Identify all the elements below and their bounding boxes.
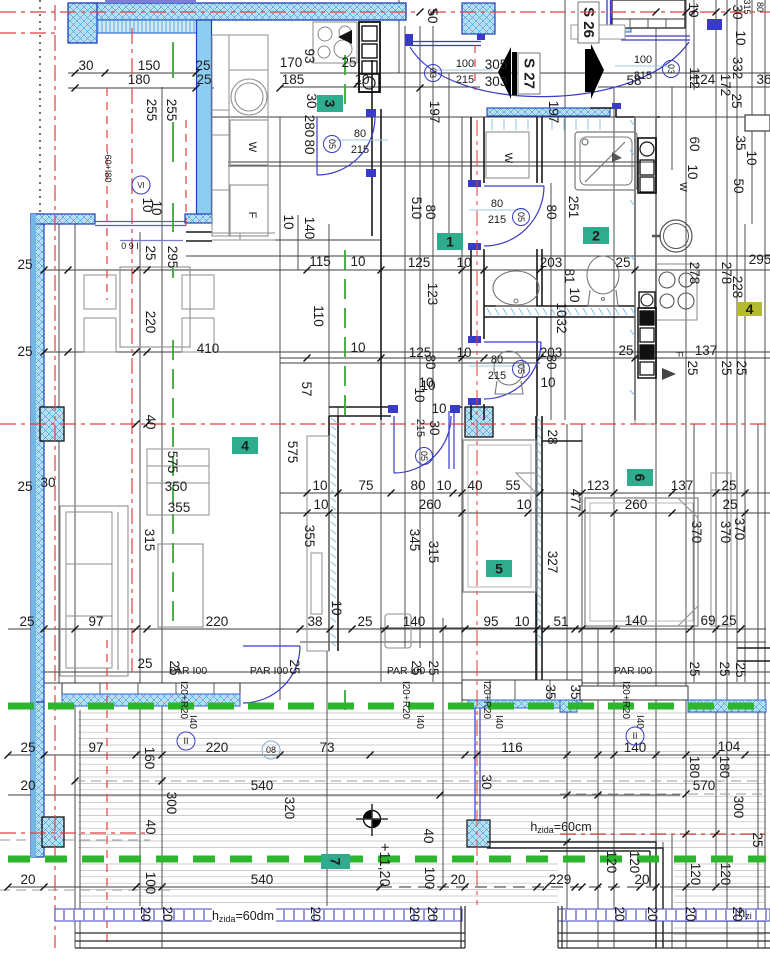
svg-text:20: 20	[612, 906, 627, 921]
svg-text:260: 260	[419, 497, 442, 512]
svg-text:05: 05	[327, 139, 337, 149]
svg-text:20: 20	[20, 778, 35, 793]
svg-text:510: 510	[409, 197, 424, 220]
svg-text:315: 315	[142, 529, 157, 552]
svg-text:51: 51	[553, 614, 568, 629]
svg-text:10: 10	[350, 254, 365, 269]
svg-text:55: 55	[505, 478, 520, 493]
svg-text:I20+R20: I20+R20	[481, 681, 492, 720]
svg-text:50: 50	[425, 8, 440, 23]
svg-text:PAR I00: PAR I00	[169, 665, 207, 677]
svg-text:25: 25	[717, 661, 732, 676]
svg-text:1: 1	[446, 234, 454, 250]
svg-text:38: 38	[307, 614, 322, 629]
svg-text:815: 815	[634, 70, 652, 82]
svg-text:350: 350	[165, 479, 188, 494]
svg-text:120: 120	[604, 851, 619, 874]
svg-text:I20+R20: I20+R20	[620, 681, 631, 720]
svg-text:PAR I00: PAR I00	[250, 665, 288, 677]
svg-text:25: 25	[19, 614, 34, 629]
svg-text:229: 229	[549, 872, 572, 887]
svg-text:540: 540	[251, 778, 274, 793]
svg-text:150: 150	[138, 58, 161, 73]
svg-text:80: 80	[544, 354, 559, 369]
svg-text:81: 81	[562, 268, 577, 283]
svg-text:20: 20	[645, 906, 660, 921]
svg-text:10: 10	[329, 600, 344, 615]
svg-text:215: 215	[456, 74, 474, 86]
svg-text:5: 5	[495, 561, 503, 577]
svg-text:255: 255	[144, 99, 159, 122]
svg-text:35: 35	[733, 135, 748, 150]
svg-text:110: 110	[311, 305, 326, 327]
svg-text:I40: I40	[493, 715, 504, 729]
svg-text:32: 32	[554, 318, 569, 333]
svg-text:220: 220	[206, 740, 229, 755]
svg-text:295: 295	[749, 252, 770, 267]
svg-text:320: 320	[282, 797, 297, 820]
svg-text:F: F	[673, 351, 684, 357]
svg-text:W: W	[502, 153, 514, 164]
svg-text:140: 140	[625, 613, 648, 628]
svg-text:25: 25	[734, 360, 749, 375]
svg-text:0 9 I: 0 9 I	[121, 241, 139, 251]
svg-text:327: 327	[545, 551, 560, 574]
svg-text:II: II	[183, 736, 188, 746]
svg-text:220: 220	[143, 311, 158, 334]
svg-text:08: 08	[266, 745, 276, 755]
svg-text:170: 170	[280, 55, 303, 70]
svg-text:25: 25	[287, 659, 302, 674]
svg-text:25: 25	[341, 55, 356, 70]
svg-text:120: 120	[688, 863, 703, 886]
svg-text:25: 25	[721, 478, 736, 493]
svg-text:197: 197	[427, 101, 442, 124]
svg-text:+11,20: +11,20	[376, 843, 392, 887]
svg-text:25: 25	[17, 344, 32, 359]
svg-text:80: 80	[410, 478, 425, 493]
svg-text:10: 10	[313, 497, 328, 512]
svg-text:10: 10	[685, 164, 700, 179]
svg-text:W: W	[677, 182, 688, 192]
svg-text:315: 315	[426, 541, 441, 564]
svg-text:10: 10	[420, 378, 435, 393]
svg-text:20: 20	[160, 906, 175, 921]
svg-text:104: 104	[718, 739, 741, 754]
svg-text:278: 278	[687, 262, 702, 285]
svg-text:80: 80	[423, 204, 438, 219]
svg-text:112: 112	[687, 67, 702, 89]
svg-text:80: 80	[544, 204, 559, 219]
svg-text:370: 370	[689, 521, 704, 544]
svg-text:28: 28	[545, 429, 560, 444]
svg-text:355: 355	[302, 525, 317, 548]
svg-text:7: 7	[328, 858, 344, 866]
svg-text:100: 100	[634, 54, 652, 66]
svg-text:57: 57	[299, 381, 314, 396]
svg-text:95: 95	[483, 614, 498, 629]
svg-text:97: 97	[88, 614, 103, 629]
svg-text:10: 10	[733, 30, 748, 45]
svg-text:115: 115	[309, 254, 331, 269]
svg-text:80: 80	[423, 354, 438, 369]
svg-text:05: 05	[516, 364, 526, 374]
svg-text:25: 25	[750, 832, 765, 847]
svg-text:93: 93	[302, 48, 317, 63]
svg-text:25: 25	[426, 660, 441, 675]
svg-text:80: 80	[755, 2, 765, 12]
svg-text:300: 300	[731, 796, 746, 819]
svg-text:160: 160	[142, 747, 157, 770]
svg-text:10: 10	[567, 287, 582, 302]
svg-text:69: 69	[700, 613, 715, 628]
svg-text:I40: I40	[187, 715, 198, 729]
svg-text:10: 10	[281, 214, 296, 229]
svg-text:25: 25	[17, 257, 32, 272]
svg-text:I40: I40	[414, 715, 425, 729]
svg-text:73: 73	[319, 740, 334, 755]
svg-text:40: 40	[143, 414, 158, 429]
svg-text:10: 10	[312, 478, 327, 493]
svg-text:140: 140	[403, 614, 426, 629]
svg-text:25: 25	[17, 479, 32, 494]
svg-text:215: 215	[414, 419, 426, 437]
svg-text:116: 116	[501, 740, 523, 755]
svg-text:35: 35	[543, 684, 558, 699]
svg-text:10: 10	[516, 497, 531, 512]
svg-text:370: 370	[732, 518, 747, 541]
svg-text:3: 3	[322, 100, 338, 108]
svg-text:25: 25	[618, 343, 633, 358]
svg-text:S 27: S 27	[521, 58, 538, 89]
svg-text:295: 295	[165, 246, 180, 269]
svg-text:25: 25	[137, 656, 152, 671]
svg-text:332: 332	[730, 57, 745, 80]
svg-text:20: 20	[138, 906, 153, 921]
svg-text:100: 100	[143, 872, 158, 895]
svg-text:123: 123	[587, 478, 610, 493]
svg-text:03: 03	[428, 68, 438, 78]
svg-text:575: 575	[285, 441, 300, 464]
svg-text:80: 80	[491, 198, 503, 210]
svg-text:137: 137	[695, 343, 718, 358]
svg-text:80: 80	[354, 128, 366, 140]
svg-text:20: 20	[450, 872, 465, 887]
svg-text:180: 180	[717, 756, 732, 779]
svg-text:25: 25	[20, 740, 35, 755]
svg-text:35: 35	[568, 684, 583, 699]
svg-text:10: 10	[540, 375, 555, 390]
svg-text:370: 370	[718, 521, 733, 544]
svg-text:185: 185	[282, 72, 305, 87]
svg-text:140: 140	[302, 217, 317, 240]
svg-text:80: 80	[302, 139, 317, 154]
svg-text:100: 100	[422, 867, 437, 890]
svg-text:10: 10	[514, 614, 529, 629]
svg-text:75: 75	[358, 478, 373, 493]
svg-text:-60+I80: -60+I80	[103, 152, 113, 183]
svg-text:540: 540	[251, 872, 274, 887]
svg-text:410: 410	[197, 341, 220, 356]
svg-text:315: 315	[742, 0, 752, 15]
svg-text:180: 180	[128, 72, 151, 87]
svg-text:97: 97	[88, 740, 103, 755]
svg-text:4: 4	[241, 438, 249, 454]
svg-text:40: 40	[143, 819, 158, 834]
svg-text:10: 10	[436, 478, 451, 493]
svg-text:05: 05	[419, 451, 429, 461]
svg-text:25: 25	[357, 614, 372, 629]
svg-text:W: W	[246, 142, 258, 153]
svg-text:10: 10	[431, 401, 446, 416]
svg-text:140: 140	[624, 740, 647, 755]
svg-text:251: 251	[566, 196, 581, 219]
svg-text:180: 180	[687, 756, 702, 779]
svg-text:II: II	[632, 731, 637, 741]
svg-text:20: 20	[407, 906, 422, 921]
svg-text:25: 25	[721, 613, 736, 628]
svg-text:30: 30	[40, 475, 55, 490]
svg-text:30: 30	[304, 93, 319, 108]
svg-text:303: 303	[485, 74, 508, 89]
svg-text:575: 575	[165, 451, 180, 474]
svg-text:20: 20	[308, 906, 323, 921]
svg-text:25: 25	[722, 497, 737, 512]
svg-text:228: 228	[730, 276, 745, 299]
svg-text:03: 03	[666, 64, 676, 74]
svg-text:255: 255	[164, 99, 179, 122]
svg-text:25: 25	[615, 255, 630, 270]
svg-text:215: 215	[351, 144, 369, 156]
svg-text:25: 25	[729, 93, 744, 108]
svg-text:VI: VI	[137, 181, 145, 190]
svg-text:100: 100	[456, 58, 474, 70]
svg-text:05: 05	[516, 212, 526, 222]
svg-text:10: 10	[744, 150, 759, 165]
svg-text:120: 120	[718, 863, 733, 886]
svg-text:25: 25	[687, 661, 702, 676]
svg-text:60: 60	[687, 136, 702, 151]
svg-text:280: 280	[302, 115, 317, 138]
svg-text:40: 40	[467, 478, 482, 493]
svg-text:25: 25	[719, 360, 734, 375]
svg-text:I20+R20: I20+R20	[178, 681, 189, 720]
svg-text:20: 20	[20, 872, 35, 887]
svg-text:25: 25	[685, 360, 700, 375]
svg-text:25: 25	[143, 245, 158, 260]
svg-text:10: 10	[149, 200, 164, 215]
svg-text:2: 2	[592, 228, 600, 244]
svg-text:570: 570	[693, 778, 716, 793]
svg-text:120: 120	[627, 851, 642, 874]
svg-text:20: 20	[425, 906, 440, 921]
svg-text:PAR I00: PAR I00	[614, 665, 652, 677]
svg-text:6: 6	[632, 474, 648, 482]
svg-text:80: 80	[491, 354, 503, 366]
svg-text:125: 125	[408, 255, 431, 270]
svg-text:30: 30	[78, 58, 93, 73]
svg-text:123: 123	[425, 283, 440, 306]
svg-text:25: 25	[733, 662, 748, 677]
svg-text:355: 355	[168, 500, 191, 515]
svg-text:40: 40	[421, 828, 436, 843]
svg-text:260: 260	[625, 497, 648, 512]
svg-text:30: 30	[427, 420, 442, 435]
svg-text:30: 30	[479, 774, 494, 789]
svg-text:50: 50	[731, 178, 746, 193]
svg-text:345: 345	[407, 529, 422, 552]
svg-text:220: 220	[206, 614, 229, 629]
svg-text:10: 10	[350, 340, 365, 355]
svg-text:10: 10	[554, 302, 569, 317]
svg-text:300: 300	[164, 792, 179, 815]
svg-text:36: 36	[756, 72, 770, 87]
svg-text:I20+R20: I20+R20	[400, 681, 411, 720]
svg-text:PAR I00: PAR I00	[387, 665, 425, 677]
svg-text:197: 197	[546, 101, 561, 124]
svg-text:4: 4	[746, 301, 754, 317]
svg-text:215: 215	[488, 214, 506, 226]
svg-text:F: F	[246, 212, 258, 219]
svg-text:215: 215	[488, 370, 506, 382]
svg-text:20: 20	[683, 906, 698, 921]
svg-text:477: 477	[568, 489, 583, 512]
svg-text:10: 10	[456, 345, 471, 360]
